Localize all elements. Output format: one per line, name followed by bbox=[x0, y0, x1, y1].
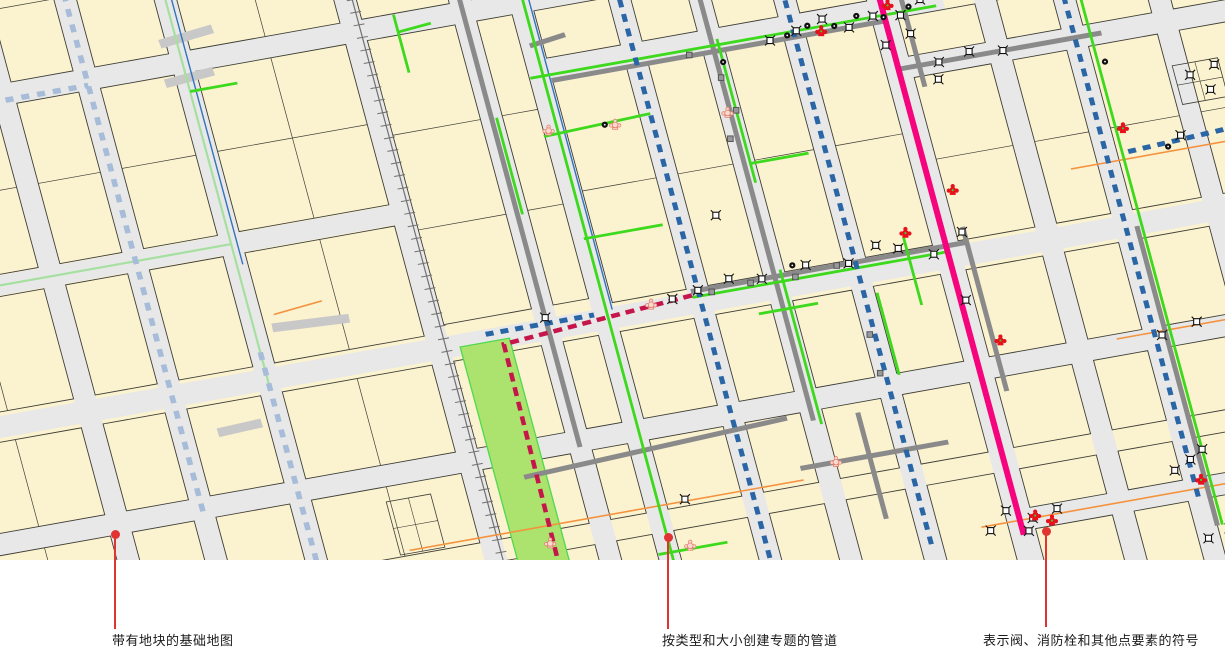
valve-icon bbox=[868, 11, 878, 21]
valve-icon bbox=[801, 260, 811, 270]
callout-label-point-symbols: 表示阀、消防栓和其他点要素的符号 bbox=[983, 630, 1199, 649]
valve-icon bbox=[1024, 526, 1034, 536]
fitting-icon bbox=[720, 59, 726, 65]
system-valve-icon bbox=[709, 289, 715, 295]
valve-icon bbox=[1206, 84, 1216, 94]
callout-label-themed-pipes: 按类型和大小创建专题的管道 bbox=[662, 630, 838, 649]
valve-icon bbox=[881, 40, 891, 50]
valve-icon bbox=[871, 240, 881, 250]
valve-icon bbox=[1204, 533, 1214, 543]
valve-icon bbox=[933, 74, 943, 84]
map-figure bbox=[0, 0, 1225, 560]
valve-icon bbox=[693, 285, 703, 295]
system-valve-icon bbox=[748, 280, 754, 286]
valve-icon bbox=[1001, 506, 1011, 516]
system-valve-icon bbox=[877, 370, 883, 376]
valve-icon bbox=[724, 274, 734, 284]
valve-icon bbox=[1192, 317, 1202, 327]
grid-layer bbox=[0, 0, 1225, 560]
fitting-icon bbox=[831, 23, 837, 29]
fitting-icon bbox=[784, 32, 790, 38]
valve-icon bbox=[998, 46, 1008, 56]
valve-icon bbox=[893, 243, 903, 253]
fitting-icon bbox=[804, 23, 810, 29]
valve-icon bbox=[957, 227, 967, 237]
valve-icon bbox=[765, 36, 775, 46]
system-valve-icon bbox=[728, 136, 734, 142]
valve-icon bbox=[844, 22, 854, 32]
valve-icon bbox=[1157, 330, 1167, 340]
fitting-icon bbox=[853, 13, 859, 19]
system-valve-icon bbox=[686, 52, 692, 58]
valve-icon bbox=[1209, 59, 1219, 69]
utility-network-map bbox=[0, 0, 1225, 560]
valve-icon bbox=[817, 14, 827, 24]
valve-icon bbox=[667, 294, 677, 304]
fitting-icon bbox=[880, 14, 886, 20]
valve-icon bbox=[929, 249, 939, 259]
fitting-icon bbox=[602, 122, 608, 128]
fitting-icon bbox=[905, 4, 911, 10]
system-valve-icon bbox=[733, 108, 739, 114]
valve-icon bbox=[680, 494, 690, 504]
valve-icon bbox=[961, 295, 971, 305]
fitting-icon bbox=[1102, 59, 1108, 65]
system-valve-icon bbox=[793, 274, 799, 280]
valve-icon bbox=[757, 274, 767, 284]
valve-icon bbox=[934, 57, 944, 67]
valve-icon bbox=[711, 210, 721, 220]
valve-icon bbox=[791, 26, 801, 36]
valve-icon bbox=[964, 47, 974, 57]
valve-icon bbox=[986, 526, 996, 536]
fitting-icon bbox=[1165, 143, 1171, 149]
valve-icon bbox=[1185, 70, 1195, 80]
valve-icon bbox=[540, 313, 550, 323]
valve-icon bbox=[906, 29, 916, 39]
callout-label-basemap: 带有地块的基础地图 bbox=[112, 630, 234, 649]
valve-icon bbox=[1197, 444, 1207, 454]
valve-icon bbox=[895, 10, 905, 20]
system-valve-icon bbox=[834, 263, 840, 269]
valve-icon bbox=[844, 258, 854, 268]
valve-icon bbox=[1170, 465, 1180, 475]
fitting-icon bbox=[789, 262, 795, 268]
valve-icon bbox=[1185, 454, 1195, 464]
valve-icon bbox=[1176, 130, 1186, 140]
valve-icon bbox=[1052, 504, 1062, 514]
system-valve-icon bbox=[718, 75, 724, 81]
system-valve-icon bbox=[867, 332, 873, 338]
